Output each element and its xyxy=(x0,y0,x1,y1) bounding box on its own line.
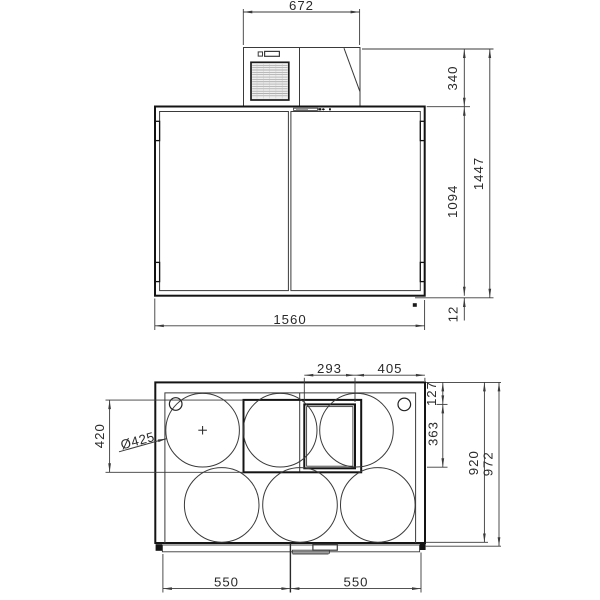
svg-text:420: 420 xyxy=(92,423,107,448)
svg-text:672: 672 xyxy=(289,0,314,13)
svg-text:1094: 1094 xyxy=(445,185,460,218)
svg-text:972: 972 xyxy=(480,451,495,476)
svg-text:293: 293 xyxy=(317,361,342,376)
svg-text:550: 550 xyxy=(214,575,239,590)
svg-text:920: 920 xyxy=(466,450,481,475)
svg-text:1447: 1447 xyxy=(471,157,486,190)
svg-text:550: 550 xyxy=(343,575,368,590)
svg-text:127: 127 xyxy=(424,381,439,406)
svg-text:340: 340 xyxy=(445,65,460,90)
svg-text:12: 12 xyxy=(445,306,460,323)
svg-text:363: 363 xyxy=(426,421,441,446)
svg-text:1560: 1560 xyxy=(273,312,306,327)
svg-text:405: 405 xyxy=(377,361,402,376)
